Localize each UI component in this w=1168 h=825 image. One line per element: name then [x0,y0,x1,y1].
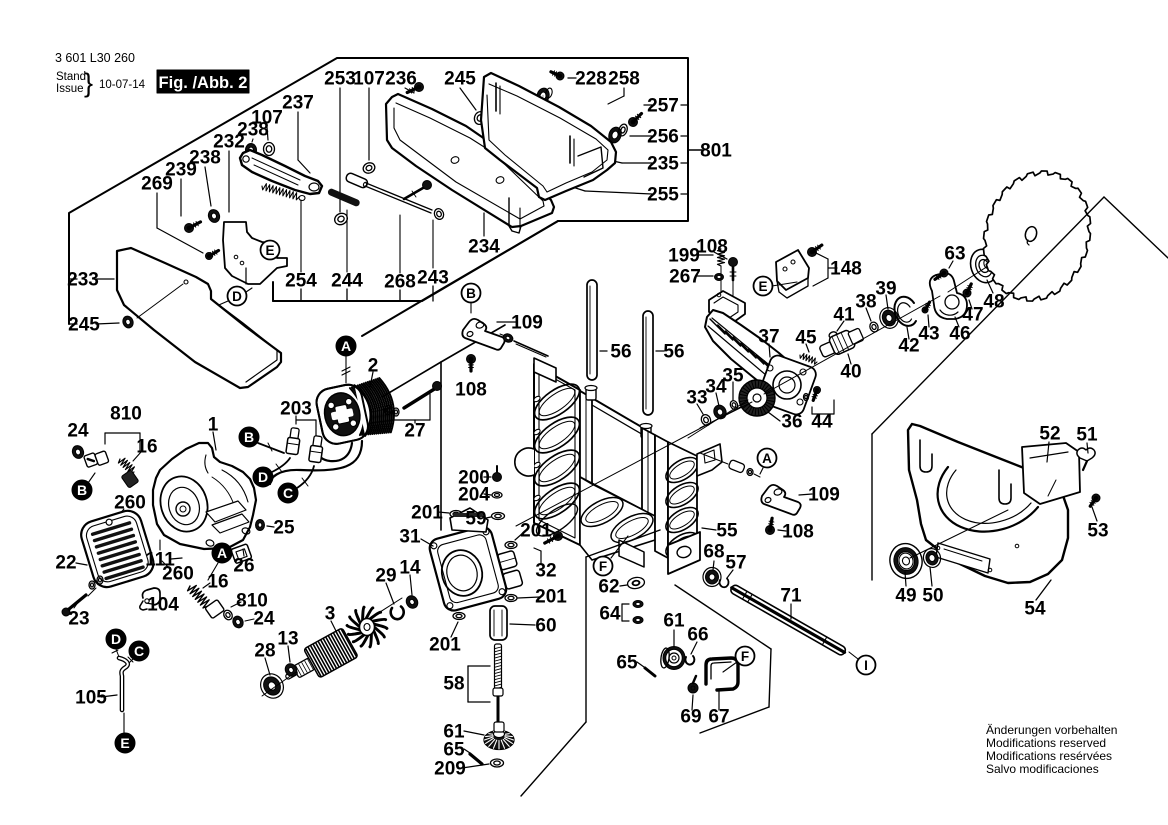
svg-text:39: 39 [875,279,896,300]
svg-text:C: C [134,643,144,659]
svg-text:F: F [599,559,607,574]
svg-text:49: 49 [895,586,916,607]
svg-text:201: 201 [411,503,443,524]
svg-text:45: 45 [795,328,817,349]
svg-text:46: 46 [949,324,970,345]
svg-text:201: 201 [429,635,461,656]
svg-text:48: 48 [983,292,1004,313]
svg-text:66: 66 [687,625,708,646]
svg-text:41: 41 [833,305,855,326]
svg-text:3 601 L30 260: 3 601 L30 260 [55,51,135,65]
svg-text:31: 31 [399,527,421,548]
svg-text:65: 65 [443,740,465,761]
svg-text:104: 104 [147,595,179,616]
svg-text:3: 3 [325,604,336,625]
svg-text:16: 16 [136,437,157,458]
svg-text:60: 60 [535,616,556,637]
svg-text:68: 68 [703,542,724,563]
svg-text:256: 256 [647,127,679,148]
svg-text:1: 1 [208,415,219,436]
svg-text:40: 40 [840,362,861,383]
svg-text:50: 50 [922,586,943,607]
svg-text:109: 109 [511,313,543,334]
svg-text:54: 54 [1024,599,1046,620]
svg-text:I: I [864,658,868,673]
svg-text:56: 56 [663,342,684,363]
svg-text:245: 245 [444,69,476,90]
svg-text:810: 810 [110,404,142,425]
svg-text:57: 57 [725,553,746,574]
svg-text:61: 61 [663,611,685,632]
svg-text:22: 22 [55,553,76,574]
svg-text:Salvo modificaciones: Salvo modificaciones [986,762,1099,776]
svg-text:63: 63 [944,244,965,265]
svg-text:F: F [741,649,749,664]
svg-text:Änderungen vorbehalten: Änderungen vorbehalten [986,723,1117,737]
svg-text:258: 258 [608,69,640,90]
svg-text:B: B [466,286,476,301]
svg-text:267: 267 [669,267,701,288]
svg-text:14: 14 [399,558,421,579]
svg-text:257: 257 [647,96,679,117]
svg-text:236: 236 [385,69,417,90]
svg-text:47: 47 [962,305,983,326]
svg-text:38: 38 [855,292,876,313]
svg-text:28: 28 [254,641,275,662]
svg-text:253: 253 [324,69,356,90]
svg-text:23: 23 [68,609,89,630]
svg-text:B: B [244,429,254,445]
svg-text:148: 148 [830,259,862,280]
svg-text:203: 203 [280,399,312,420]
svg-text:}: } [84,68,93,98]
svg-text:108: 108 [696,237,728,258]
svg-text:2: 2 [368,356,379,377]
svg-text:228: 228 [575,69,607,90]
svg-text:108: 108 [782,522,814,543]
svg-text:Modifications reserved: Modifications reserved [986,736,1106,750]
svg-text:D: D [232,289,242,304]
svg-text:51: 51 [1076,425,1098,446]
svg-text:E: E [120,735,129,751]
svg-text:59: 59 [465,509,486,530]
svg-text:D: D [258,469,268,485]
svg-text:62: 62 [598,577,619,598]
svg-text:260: 260 [162,564,194,585]
svg-text:71: 71 [780,586,802,607]
svg-text:Issue: Issue [56,83,84,95]
svg-text:64: 64 [599,604,621,625]
svg-text:43: 43 [918,324,939,345]
svg-text:53: 53 [1087,521,1108,542]
svg-text:B: B [77,482,87,498]
svg-text:10-07-14: 10-07-14 [99,79,146,91]
svg-text:108: 108 [455,380,487,401]
svg-text:233: 233 [67,270,99,291]
svg-text:A: A [341,338,351,354]
svg-text:109: 109 [808,485,840,506]
svg-text:33: 33 [686,388,707,409]
svg-text:E: E [265,243,274,258]
svg-text:105: 105 [75,688,107,709]
svg-text:25: 25 [273,518,295,539]
svg-text:269: 269 [141,174,173,195]
svg-text:201: 201 [520,521,552,542]
svg-text:42: 42 [898,336,919,357]
svg-text:201: 201 [535,587,567,608]
svg-text:58: 58 [443,674,464,695]
svg-text:204: 204 [458,485,490,506]
svg-text:55: 55 [716,521,738,542]
svg-text:37: 37 [758,327,779,348]
svg-text:16: 16 [207,572,228,593]
svg-text:199: 199 [668,246,700,267]
svg-text:209: 209 [434,759,466,780]
svg-text:24: 24 [67,421,89,442]
svg-text:Fig. /Abb. 2: Fig. /Abb. 2 [159,74,248,92]
svg-text:A: A [217,545,227,561]
svg-text:13: 13 [277,629,298,650]
svg-text:44: 44 [811,412,833,433]
svg-text:69: 69 [680,707,701,728]
svg-text:234: 234 [468,237,500,258]
svg-text:24: 24 [253,609,275,630]
svg-text:801: 801 [700,141,732,162]
svg-text:D: D [111,631,121,647]
svg-text:C: C [283,485,293,501]
svg-text:52: 52 [1039,424,1060,445]
svg-text:E: E [758,279,767,294]
svg-text:65: 65 [616,653,638,674]
svg-text:237: 237 [282,93,314,114]
svg-text:36: 36 [781,412,802,433]
svg-text:260: 260 [114,493,146,514]
svg-text:107: 107 [353,69,385,90]
svg-text:235: 235 [647,154,679,175]
svg-text:Stand: Stand [56,71,86,83]
svg-text:29: 29 [375,566,396,587]
svg-text:67: 67 [708,707,729,728]
svg-text:A: A [762,451,772,466]
svg-text:35: 35 [722,366,744,387]
svg-text:27: 27 [404,421,425,442]
svg-text:56: 56 [610,342,631,363]
svg-text:26: 26 [233,556,254,577]
svg-text:255: 255 [647,185,679,206]
svg-text:245: 245 [68,315,100,336]
svg-text:32: 32 [535,561,556,582]
svg-text:Modifications resérvées: Modifications resérvées [986,749,1112,763]
